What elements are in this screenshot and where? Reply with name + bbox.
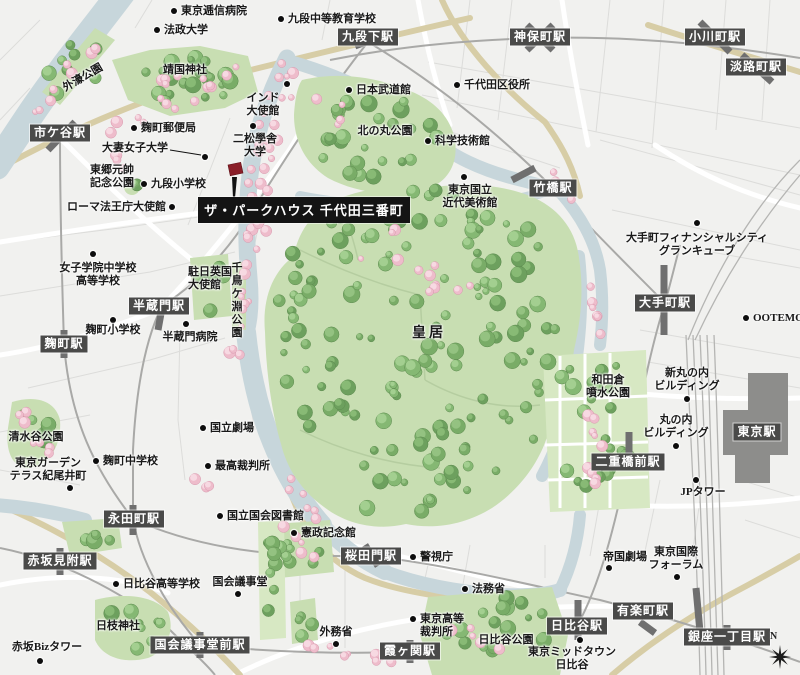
landmark-label-midtown-hibiya: 東京ミッドタウン日比谷: [528, 646, 616, 671]
station-badge-jimbocho: 神保町駅: [510, 29, 570, 46]
landmark-label-hie-shrine: 日枝神社: [96, 620, 140, 633]
station-badge-otemachi: 大手町駅: [635, 295, 695, 312]
landmark-label-jp-tower: JPタワー: [680, 486, 725, 499]
landmark-dot-hibiya-high-school: [113, 581, 120, 588]
landmark-label-akasaka-biz-tower: 赤坂Bizタワー: [12, 641, 82, 654]
station-badge-kasumigaseki: 霞ヶ関駅: [380, 643, 440, 660]
landmark-dot-science-museum: [425, 138, 432, 145]
landmark-dot-kojimachi-post-office: [131, 125, 138, 132]
landmark-label-kudan-elementary-school: 九段小学校: [151, 178, 206, 191]
landmark-label-national-diet-library: 国立国会図書館: [227, 510, 304, 523]
landmark-label-togo-memorial-park: 東郷元帥記念公園: [90, 164, 134, 189]
landmark-label-kudan-secondary-school: 九段中等教育学校: [288, 13, 376, 26]
landmark-label-ministry-of-foreign-affairs: 外務省: [320, 626, 353, 639]
landmark-label-chidorigafuchi-park: 千鳥ケ淵公園: [232, 262, 243, 340]
landmark-label-shimizudani-park: 清水谷公園: [9, 431, 64, 444]
landmark-label-tokyo-teishin-hospital: 東京逓信病院: [181, 5, 247, 18]
landmark-dot-hosei-university: [154, 27, 161, 34]
landmark-label-ministry-of-justice: 法務省: [472, 583, 505, 596]
landmark-label-india-embassy: インド大使館: [247, 92, 280, 117]
landmark-label-yasukuni-shrine: 靖国神社: [163, 64, 207, 77]
landmark-label-kensei-memorial-hall: 憲政記念館: [301, 527, 356, 540]
labels-layer: 市ケ谷駅九段下駅神保町駅小川町駅淡路町駅竹橋駅大手町駅東京駅二重橋前駅半蔵門駅麹…: [0, 0, 800, 675]
station-badge-akasaka-mitsuke: 赤坂見附駅: [23, 553, 96, 570]
station-badge-ichigaya: 市ケ谷駅: [30, 125, 90, 142]
landmark-dot-shin-marunouchi-building: [684, 396, 691, 403]
station-badge-kudanshita: 九段下駅: [338, 29, 398, 46]
landmark-dot-metropolitan-police-hq: [410, 554, 417, 561]
landmark-dot-momat-museum: [461, 174, 468, 181]
station-badge-nagatacho: 永田町駅: [104, 511, 164, 528]
landmark-dot-india-embassy: [284, 81, 291, 88]
landmark-dot-nippon-budokan: [346, 87, 353, 94]
landmark-dot-ootemori: [743, 315, 750, 322]
station-badge-nijubashimae: 二重橋前駅: [591, 454, 664, 471]
landmark-label-kojimachi-post-office: 麹町郵便局: [141, 122, 196, 135]
station-badge-tokyo: 東京駅: [733, 424, 780, 441]
landmark-label-hosei-university: 法政大学: [164, 24, 208, 37]
landmark-label-hanzomon-hospital: 半蔵門病院: [163, 331, 218, 344]
landmark-dot-kudan-secondary-school: [278, 16, 285, 23]
station-badge-hibiya: 日比谷駅: [547, 618, 607, 635]
landmark-label-tokyo-international-forum: 東京国際フォーラム: [649, 546, 704, 571]
property-name: ザ・パークハウス 千代田三番町: [204, 204, 404, 217]
landmark-dot-kojimachi-junior-high: [93, 458, 100, 465]
landmark-dot-kojimachi-elementary-school: [110, 317, 117, 324]
landmark-label-uk-embassy: 駐日英国大使館: [188, 266, 232, 291]
landmark-dot-national-theatre: [200, 425, 207, 432]
landmark-dot-jp-tower: [693, 477, 700, 484]
property-label: ザ・パークハウス 千代田三番町: [198, 197, 410, 223]
landmark-label-marunouchi-building: 丸の内ビルディング: [643, 414, 708, 439]
station-badge-takebashi: 竹橋駅: [529, 180, 576, 197]
landmark-dot-otemachi-financial-city: [694, 220, 701, 227]
landmark-label-shin-marunouchi-building: 新丸の内ビルディング: [654, 367, 719, 392]
station-badge-kokkai-gijidomae: 国会議事堂前駅: [150, 637, 249, 654]
landmark-dot-joshigakuin-school: [90, 251, 97, 258]
landmark-dot-otsuma-womens-university: [202, 154, 209, 161]
landmark-label-otemachi-financial-city: 大手町フィナンシャルシティグランキューブ: [626, 232, 768, 257]
station-badge-ginza-itchome: 銀座一丁目駅: [684, 629, 770, 646]
landmark-label-metropolitan-police-hq: 警視庁: [420, 551, 453, 564]
landmark-label-wadakura-fountain-park: 和田倉噴水公園: [586, 374, 630, 399]
station-badge-sakuradamon: 桜田門駅: [341, 548, 401, 565]
landmark-label-tokyo-garden-terrace-kioicho: 東京ガーデンテラス紀尾井町: [10, 457, 87, 482]
landmark-label-holy-see-embassy: ローマ法王庁大使館: [67, 201, 166, 214]
landmark-label-supreme-court: 最高裁判所: [215, 460, 270, 473]
landmark-label-national-theatre: 国立劇場: [210, 422, 254, 435]
landmark-dot-chiyoda-ward-office: [454, 82, 461, 89]
station-badge-hanzomon: 半蔵門駅: [129, 298, 189, 315]
landmark-dot-tokyo-high-court: [410, 616, 417, 623]
landmark-label-sotobori-park: 外濠公園: [61, 62, 105, 95]
landmark-dot-kudan-elementary-school: [141, 181, 148, 188]
landmark-label-imperial-palace: 皇居: [412, 326, 446, 342]
station-badge-yurakucho: 有楽町駅: [613, 603, 673, 620]
landmark-dot-akasaka-biz-tower: [37, 658, 44, 665]
landmark-dot-ministry-of-justice: [462, 586, 469, 593]
landmark-dot-kensei-memorial-hall: [291, 530, 298, 537]
landmark-label-nishogakusha-university: 二松學舎大学: [233, 133, 277, 158]
landmark-label-kitanomaru-park: 北の丸公園: [358, 125, 413, 138]
station-badge-kojimachi: 麹町駅: [40, 336, 87, 353]
landmark-label-otsuma-womens-university: 大妻女子大学: [102, 142, 168, 155]
landmark-label-hibiya-high-school: 日比谷高等学校: [123, 578, 200, 591]
landmark-label-tokyo-high-court: 東京高等裁判所: [420, 613, 464, 638]
landmark-label-ootemori: OOTEMORI: [753, 312, 800, 325]
landmark-label-chiyoda-ward-office: 千代田区役所: [464, 79, 530, 92]
landmark-dot-tokyo-garden-terrace-kioicho: [67, 485, 74, 492]
landmark-label-momat-museum: 東京国立近代美術館: [443, 184, 498, 209]
landmark-dot-midtown-hibiya: [577, 637, 584, 644]
station-badge-awajicho: 淡路町駅: [726, 59, 786, 76]
landmark-dot-marunouchi-building: [673, 443, 680, 450]
landmark-dot-tokyo-teishin-hospital: [171, 8, 178, 15]
landmark-label-joshigakuin-school: 女子学院中学校高等学校: [60, 262, 137, 287]
landmark-dot-holy-see-embassy: [169, 204, 176, 211]
landmark-label-kojimachi-elementary-school: 麹町小学校: [86, 324, 141, 337]
landmark-dot-tokyo-international-forum: [674, 574, 681, 581]
landmark-label-hibiya-park: 日比谷公園: [479, 634, 534, 647]
compass-north-label: N: [770, 632, 777, 642]
landmark-label-national-diet-building: 国会議事堂: [213, 576, 268, 589]
landmark-dot-national-diet-library: [217, 513, 224, 520]
landmark-dot-national-diet-building: [235, 591, 242, 598]
landmark-dot-supreme-court: [205, 463, 212, 470]
landmark-label-science-museum: 科学技術館: [435, 135, 490, 148]
station-badge-ogawamachi: 小川町駅: [685, 29, 745, 46]
landmark-label-imperial-theatre: 帝国劇場: [603, 551, 647, 564]
landmark-label-kojimachi-junior-high: 麹町中学校: [103, 455, 158, 468]
landmark-label-nippon-budokan: 日本武道館: [356, 84, 411, 97]
map-canvas: 市ケ谷駅九段下駅神保町駅小川町駅淡路町駅竹橋駅大手町駅東京駅二重橋前駅半蔵門駅麹…: [0, 0, 800, 675]
landmark-dot-ministry-of-foreign-affairs: [333, 641, 340, 648]
landmark-dot-nishogakusha-university: [250, 123, 257, 130]
landmark-dot-hanzomon-hospital: [183, 321, 190, 328]
landmark-dot-imperial-theatre: [606, 565, 613, 572]
